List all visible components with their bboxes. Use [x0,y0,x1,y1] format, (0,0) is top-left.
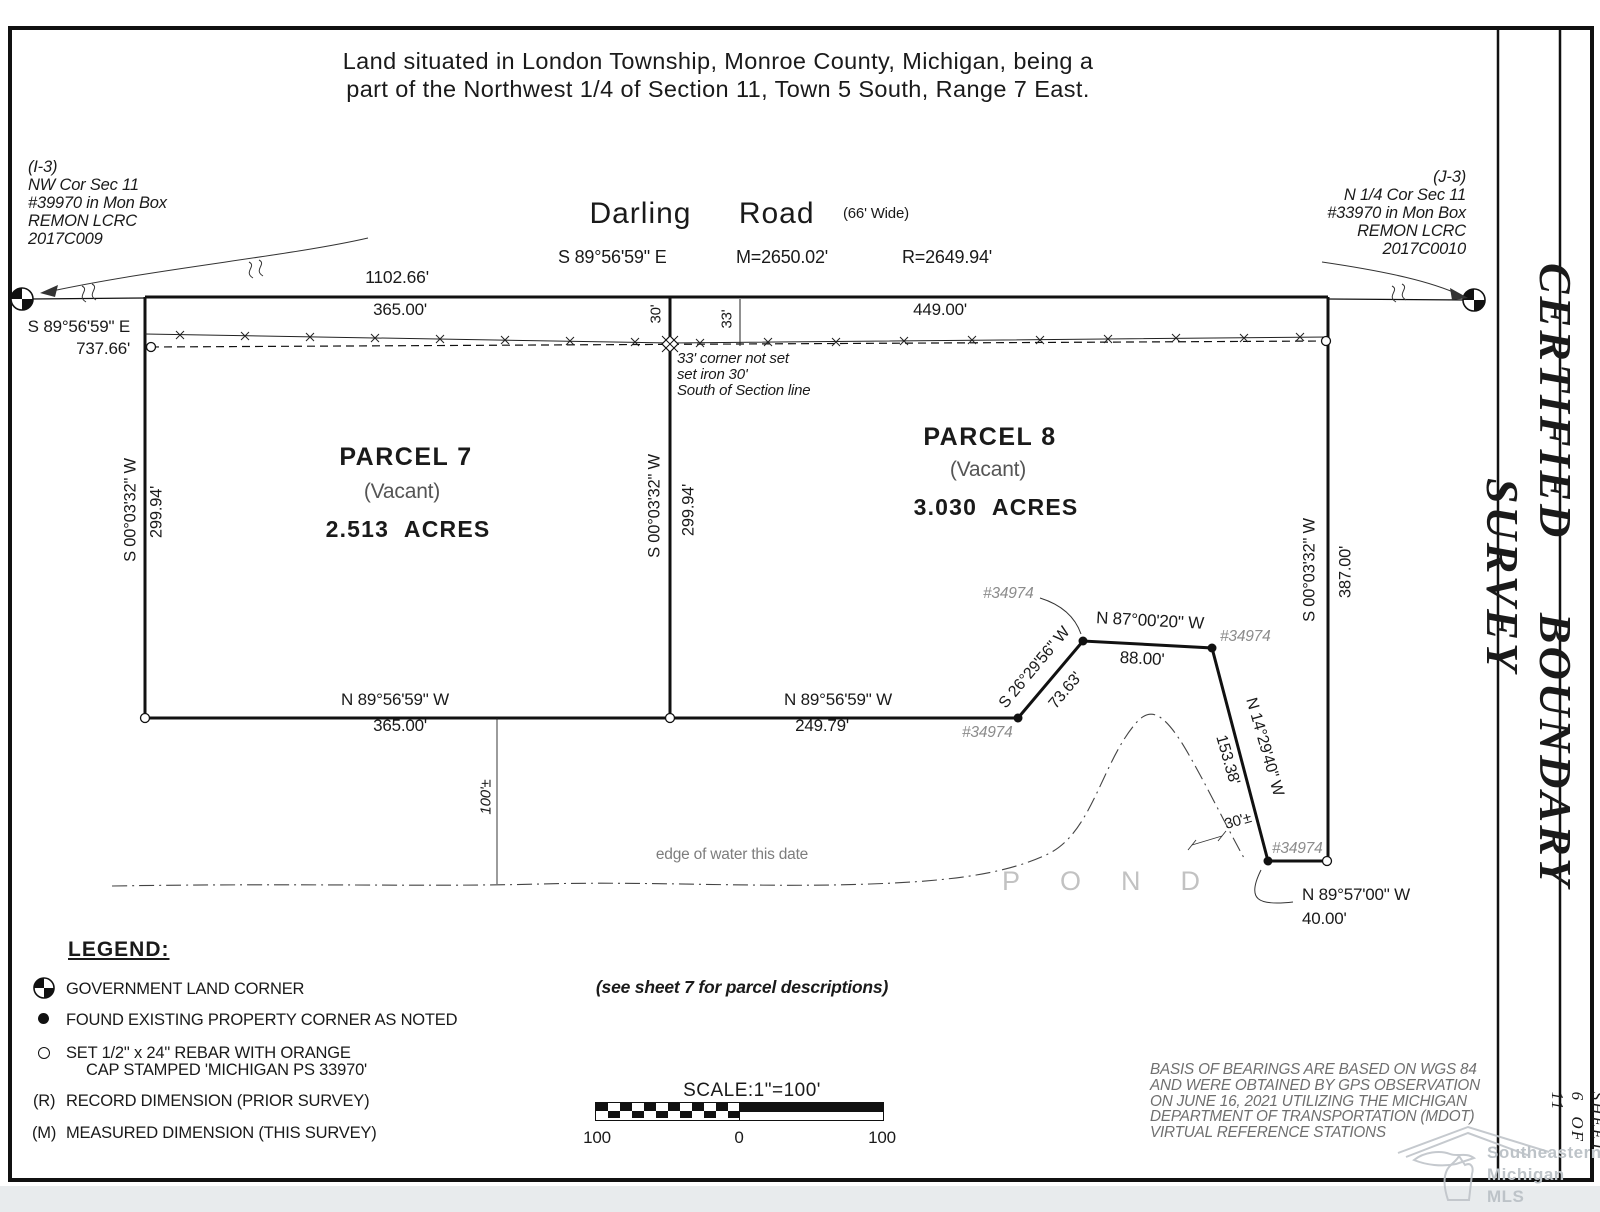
legend-item-text2: CAP STAMPED 'MICHIGAN PS 33970' [86,1061,367,1080]
scale-bar-solid [740,1103,883,1120]
n-quarter-note-line: #33970 in Mon Box [1314,204,1466,222]
corner-note-line: 33' corner not set [677,351,810,367]
dim-p7-frontage: 365.00' [373,300,427,320]
jog4-distance: 40.00' [1302,909,1347,929]
divider-bearing: S 00°03'32" W [646,454,665,558]
scale-left-value: 100 [583,1128,611,1148]
parcel8-area: 3.030 ACRES [914,494,1079,521]
n-quarter-note-line: (J-3) [1314,168,1466,186]
nw-corner-note-line: 2017C009 [28,230,167,248]
legend-prefix: (M) [32,1124,56,1143]
road-width-note: (66' Wide) [843,205,909,222]
scale-bar-checkered [596,1103,740,1120]
scale-label: SCALE:1"=100' [683,1080,821,1102]
basis-note-line: DEPARTMENT OF TRANSPORTATION (MDOT) [1150,1109,1480,1125]
dim-offset-30: 30' [648,305,665,324]
parcel8-vacant: (Vacant) [950,458,1026,482]
legend-item-text: GOVERNMENT LAND CORNER [66,980,304,999]
basis-note-line: ON JUNE 16, 2021 UTILIZING THE MICHIGAN [1150,1094,1480,1110]
jog2-distance: 88.00' [1119,648,1165,670]
p7-south-bearing: N 89°56'59" W [341,690,449,710]
p7-south-distance: 365.00' [373,716,427,736]
set-rebar-circles [141,337,1332,866]
pond-name: POND [1002,866,1240,897]
rebar-id-marker: #34974 [1272,840,1323,858]
scale-bar [595,1102,884,1121]
legend-item-text: RECORD DIMENSION (PRIOR SURVEY) [66,1092,369,1111]
p7-west-distance: 299.94' [148,486,167,538]
n-quarter-note-line: N 1/4 Cor Sec 11 [1314,186,1466,204]
n-quarter-corner-note: (J-3) N 1/4 Cor Sec 11 #33970 in Mon Box… [1314,168,1466,258]
sheet-title-line1: Land situated in London Township, Monroe… [343,48,1094,75]
mls-watermark-text: MLS [1487,1187,1524,1207]
government-corner-symbol-west [11,288,33,310]
scale-zero-value: 0 [734,1128,743,1148]
section-line-bearing-west: S 89°56'59" E [20,317,130,337]
parcel7-name: PARCEL 7 [339,443,472,472]
parcel7-area: 2.513 ACRES [326,516,491,543]
legend-prefix: (R) [33,1092,55,1111]
dim-offset-33: 33' [719,310,736,329]
nw-corner-note-line: #39970 in Mon Box [28,194,167,212]
basis-note-line: VIRTUAL REFERENCE STATIONS [1150,1125,1480,1141]
parcel7-vacant: (Vacant) [364,480,440,504]
legend-set-rebar-icon [38,1047,50,1059]
mls-watermark-text: Southeastern [1487,1143,1600,1163]
p8-east-bearing: S 00°03'32" W [1301,518,1320,622]
legend-gov-corner-icon [32,976,56,1000]
legend-item-text: MEASURED DIMENSION (THIS SURVEY) [66,1124,377,1143]
legend-item-text: FOUND EXISTING PROPERTY CORNER AS NOTED [66,1011,457,1030]
road-record-distance: R=2649.94' [902,247,992,268]
p7-west-bearing: S 00°03'32" W [122,458,141,562]
nw-corner-note-line: NW Cor Sec 11 [28,176,167,194]
certification-title: CERTIFIED BOUNDARY SURVEY [1476,136,1582,1016]
water-offset-ticks [1188,831,1226,850]
legend-found-corner-icon [38,1013,49,1024]
legend-title: LEGEND: [68,938,170,962]
rebar-id-marker: #34974 [962,724,1013,742]
basis-note-line: BASIS OF BEARINGS ARE BASED ON WGS 84 [1150,1062,1480,1078]
road-measured-distance: M=2650.02' [736,247,828,268]
basis-of-bearings-note: BASIS OF BEARINGS ARE BASED ON WGS 84 AN… [1150,1062,1480,1141]
n-quarter-note-line: 2017C0010 [1314,240,1466,258]
mls-watermark-text: Michigan [1487,1165,1565,1185]
right-of-way-line [145,299,1328,347]
p8-east-distance: 387.00' [1337,546,1356,598]
nw-corner-note-line: (I-3) [28,158,167,176]
scale-right-value: 100 [868,1128,896,1148]
corner-note-line: set iron 30' [677,367,810,383]
basis-note-line: AND WERE OBTAINED BY GPS OBSERVATION [1150,1078,1480,1094]
p8-south-distance: 249.79' [795,716,849,736]
section-line-distance-west: 737.66' [20,339,130,359]
rebar-id-marker: #34974 [983,585,1034,603]
see-sheet-note: (see sheet 7 for parcel descriptions) [596,977,888,998]
corner-note-line: South of Section line [677,383,810,399]
n-quarter-note-line: REMON LCRC [1314,222,1466,240]
sheet-title-line2: part of the Northwest 1/4 of Section 11,… [346,76,1090,103]
corner-not-set-note: 33' corner not set set iron 30' South of… [677,351,810,398]
nw-corner-note-line: REMON LCRC [28,212,167,230]
dim-p8-frontage: 449.00' [913,300,967,320]
pond-offset-label: 100'± [478,779,495,814]
jog4-bearing: N 89°57'00" W [1302,885,1410,905]
parcel8-name: PARCEL 8 [923,423,1056,452]
p8-south-bearing: N 89°56'59" W [784,690,892,710]
divider-distance: 299.94' [680,484,699,536]
road-bearing: S 89°56'59" E [558,247,667,268]
road-name: Darling Road [589,197,814,231]
rebar-id-marker: #34974 [1220,628,1271,646]
nw-corner-note: (I-3) NW Cor Sec 11 #39970 in Mon Box RE… [28,158,167,248]
corner-not-set-diamond [662,336,678,352]
dim-north-overall: 1102.66' [365,267,429,288]
arrowhead-west [40,285,58,297]
survey-sheet: Land situated in London Township, Monroe… [0,0,1600,1212]
water-edge-label: edge of water this date [656,846,808,864]
